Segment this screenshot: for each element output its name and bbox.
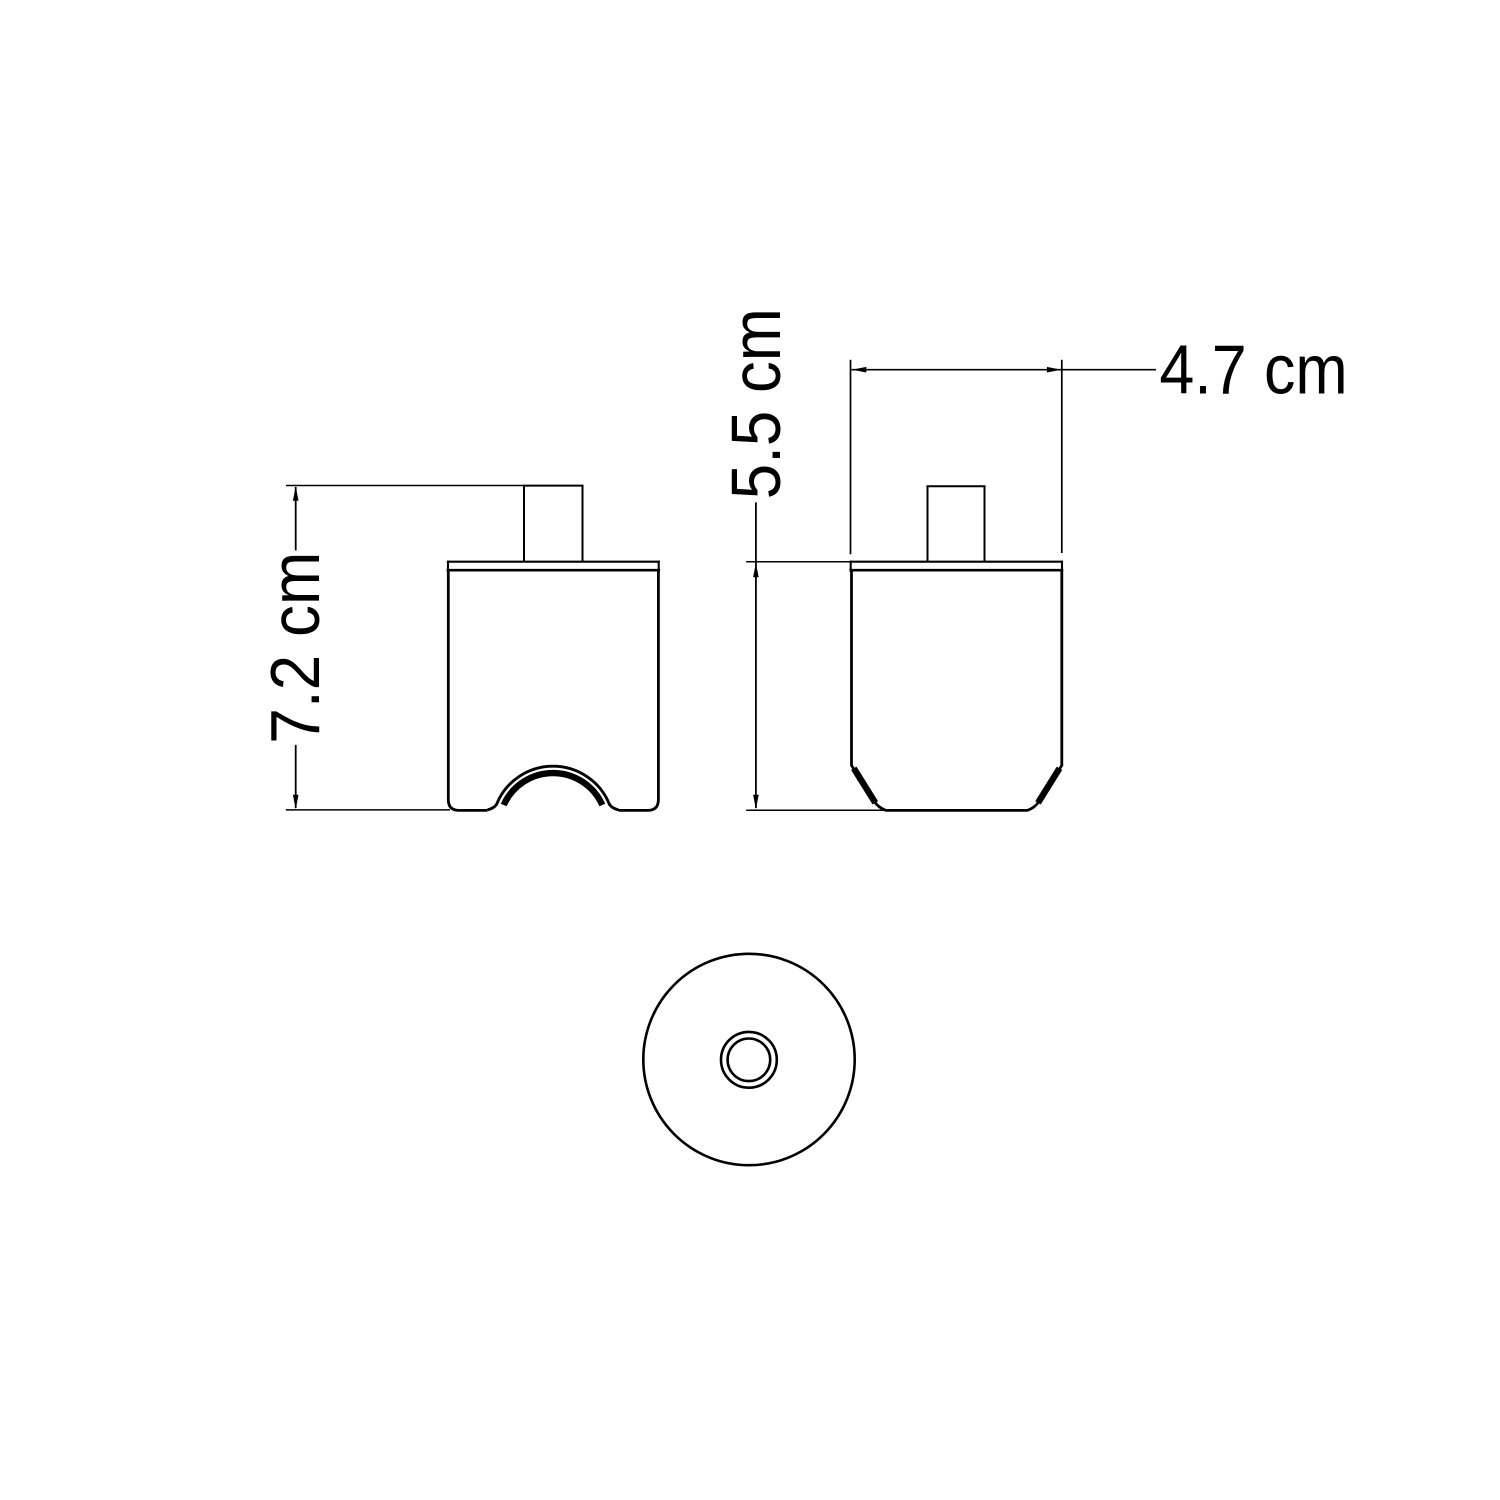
svg-text:4.7 cm: 4.7 cm: [1159, 330, 1347, 408]
svg-text:7.2 cm: 7.2 cm: [256, 552, 334, 744]
svg-text:5.5 cm: 5.5 cm: [717, 308, 795, 499]
